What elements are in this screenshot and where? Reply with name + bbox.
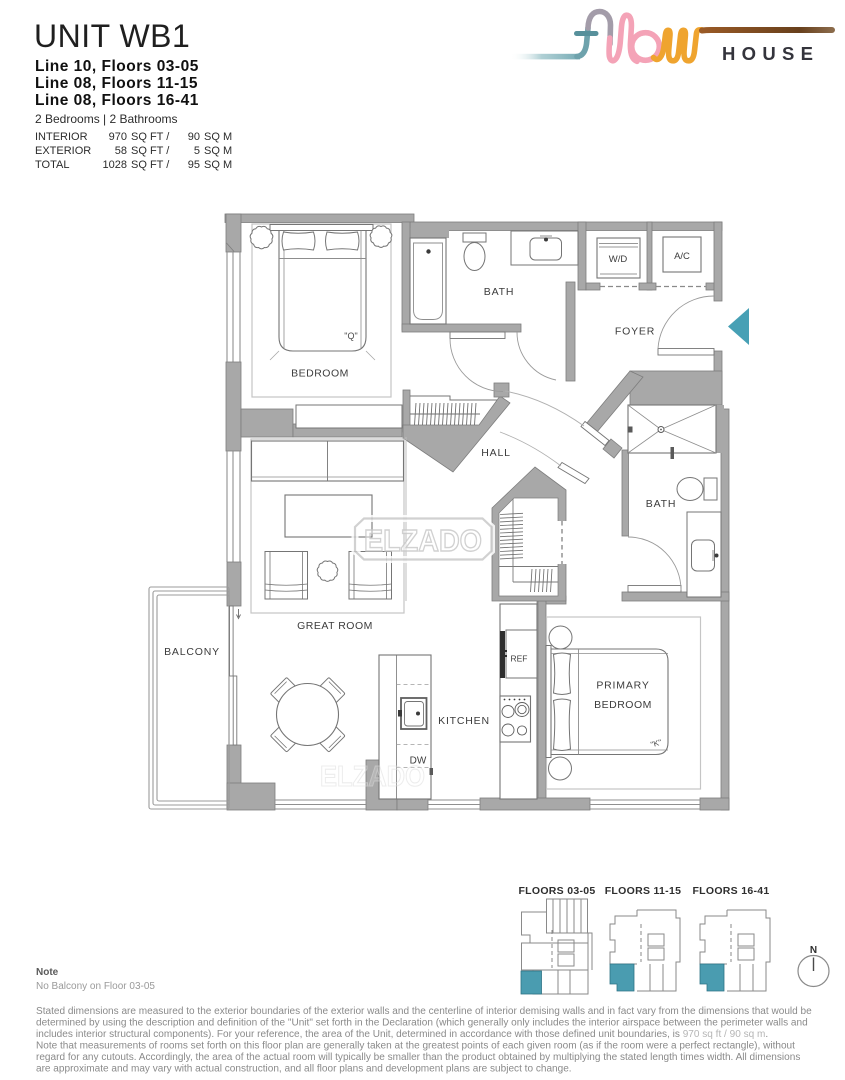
svg-text:Line 08, Floors 16-41: Line 08, Floors 16-41 [35,92,199,109]
svg-text:FLOORS 03-05: FLOORS 03-05 [518,885,595,897]
svg-text:BALCONY: BALCONY [164,646,220,658]
svg-text:SQ M: SQ M [204,145,232,157]
svg-text:SQ M: SQ M [204,159,232,171]
svg-text:determined by using the descri: determined by using the description and … [36,1018,808,1029]
svg-text:INTERIOR: INTERIOR [35,131,88,143]
svg-text:BEDROOM: BEDROOM [291,368,349,380]
svg-text:Line 08, Floors 11-15: Line 08, Floors 11-15 [35,75,198,92]
svg-text:BEDROOM: BEDROOM [594,699,652,711]
svg-text:No Balcony on Floor 03-05: No Balcony on Floor 03-05 [36,981,155,992]
svg-text:N: N [810,945,817,956]
svg-text:HOUSE: HOUSE [722,43,819,64]
svg-text:A/C: A/C [674,251,690,262]
svg-text:TOTAL: TOTAL [35,159,69,171]
svg-text:EXTERIOR: EXTERIOR [35,145,91,157]
svg-text:1028: 1028 [103,159,127,171]
svg-text:W/D: W/D [609,254,628,265]
svg-text:970: 970 [109,131,127,143]
svg-text:"Q": "Q" [344,331,357,341]
svg-text:FOYER: FOYER [615,326,655,338]
svg-text:includes interior structural c: includes interior structural components)… [36,1029,768,1040]
svg-text:90: 90 [188,131,200,143]
svg-text:Line 10, Floors 03-05: Line 10, Floors 03-05 [35,58,199,75]
svg-text:Stated dimensions are measured: Stated dimensions are measured to the ex… [36,1006,812,1017]
svg-text:SQ FT /: SQ FT / [131,131,170,143]
svg-text:FLOORS 11-15: FLOORS 11-15 [605,885,682,897]
svg-text:BATH: BATH [646,498,676,510]
svg-text:PRIMARY: PRIMARY [596,680,649,692]
svg-text:ELZADO: ELZADO [320,761,425,793]
svg-text:Note that measurements of room: Note that measurements of rooms set fort… [36,1041,795,1052]
svg-text:are approximate and may vary w: are approximate and may vary with actual… [36,1064,572,1075]
svg-text:regard for any cutouts. Accor: regard for any cutouts. Accordingly, the… [36,1052,800,1063]
svg-text:5: 5 [194,145,200,157]
svg-text:KITCHEN: KITCHEN [438,715,490,727]
svg-text:ELZADO: ELZADO [364,523,482,558]
svg-text:SQ M: SQ M [204,131,232,143]
svg-text:SQ FT /: SQ FT / [131,159,170,171]
svg-text:REF: REF [511,654,528,664]
svg-text:FLOORS 16-41: FLOORS 16-41 [692,885,769,897]
svg-text:HALL: HALL [481,447,510,459]
svg-text:58: 58 [115,145,127,157]
svg-text:Note: Note [36,967,59,978]
svg-text:95: 95 [188,159,200,171]
svg-text:BATH: BATH [484,286,514,298]
svg-text:GREAT ROOM: GREAT ROOM [297,620,373,632]
svg-text:2 Bedrooms | 2 Bathrooms: 2 Bedrooms | 2 Bathrooms [35,112,178,126]
svg-text:SQ FT /: SQ FT / [131,145,170,157]
svg-text:UNIT WB1: UNIT WB1 [34,18,190,54]
